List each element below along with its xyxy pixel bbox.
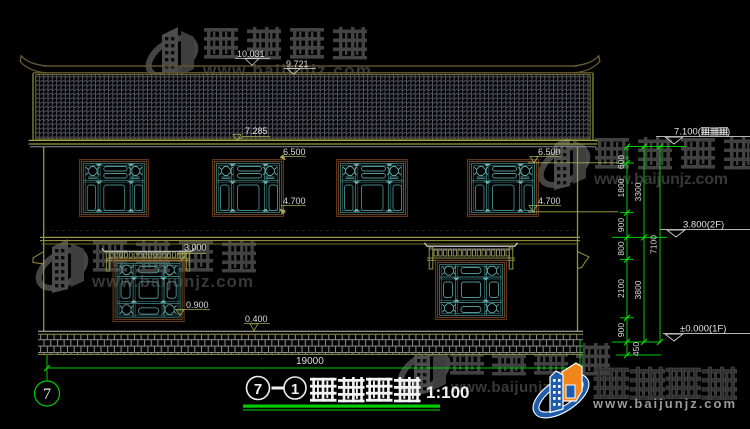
svg-text:2100: 2100: [616, 279, 626, 298]
svg-text:4.700: 4.700: [283, 196, 306, 206]
svg-text:1:100: 1:100: [426, 383, 469, 402]
svg-text:1: 1: [291, 381, 299, 398]
svg-text:3300: 3300: [633, 182, 643, 201]
svg-text:900: 900: [616, 218, 626, 232]
svg-text:1800: 1800: [616, 178, 626, 197]
svg-text:4.700: 4.700: [538, 196, 561, 206]
svg-text:7100: 7100: [649, 235, 659, 254]
svg-text:): ): [727, 127, 730, 138]
svg-text:3.800(2F): 3.800(2F): [683, 220, 724, 231]
svg-text:7: 7: [43, 386, 51, 403]
svg-text:900: 900: [616, 323, 626, 337]
svg-text:3.000: 3.000: [184, 243, 207, 253]
svg-text:9.721: 9.721: [286, 59, 309, 69]
svg-text:800: 800: [616, 241, 626, 255]
svg-text:±0.000(1F): ±0.000(1F): [680, 324, 726, 335]
svg-text:0.400: 0.400: [245, 314, 268, 324]
svg-text:6.500: 6.500: [538, 147, 561, 157]
svg-text:600: 600: [616, 155, 626, 169]
svg-text:450: 450: [631, 342, 641, 356]
svg-text:10.031: 10.031: [237, 49, 265, 59]
svg-text:6.500: 6.500: [283, 147, 306, 157]
svg-text:7.100(: 7.100(: [674, 127, 702, 138]
svg-text:3800: 3800: [633, 280, 643, 299]
svg-text:7.285: 7.285: [245, 126, 268, 136]
svg-text:19000: 19000: [296, 356, 324, 367]
svg-text:0.900: 0.900: [186, 300, 209, 310]
svg-text:7: 7: [254, 381, 262, 398]
